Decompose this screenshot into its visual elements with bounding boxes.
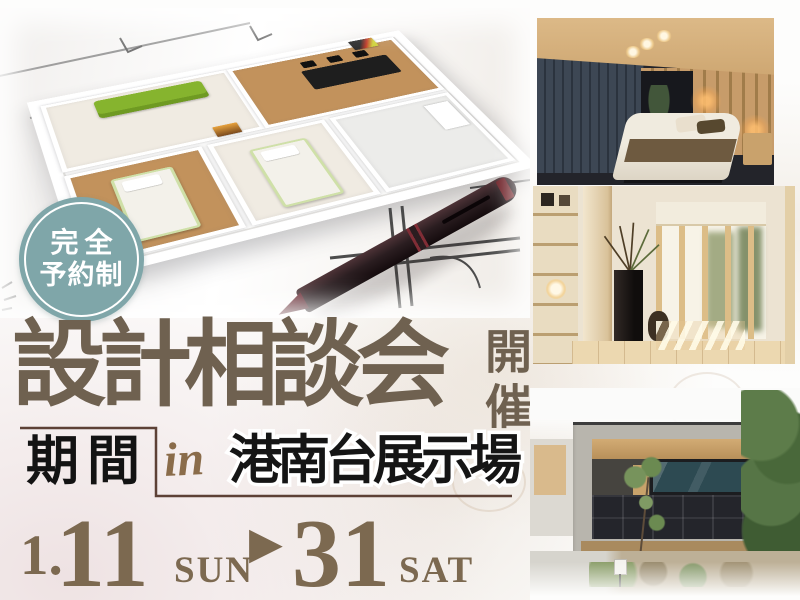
blanket: [624, 139, 736, 162]
wood-soffit: [592, 439, 764, 459]
arrow-right-icon: ▶: [249, 522, 283, 566]
bed: [620, 113, 736, 180]
dining-table: [301, 54, 402, 89]
window: [656, 202, 766, 339]
date-end-day: 31: [292, 505, 390, 600]
annex-wood-panel: [534, 445, 566, 496]
venue-name-text: 港南台展示場: [229, 432, 517, 490]
round-lamp: [546, 279, 566, 299]
badge-line2: 予約制: [40, 260, 124, 291]
wood-frame-edge: [785, 186, 795, 364]
facade-opening: [592, 439, 764, 540]
roller-shade: [656, 202, 766, 226]
downlight: [639, 38, 655, 50]
exterior-photo: [530, 388, 800, 600]
bottom-fade: [530, 562, 800, 600]
small-tree: [619, 452, 673, 554]
sunlight-stripes: [656, 321, 745, 349]
event-title: 設計相談会: [12, 316, 442, 418]
pillow: [260, 145, 301, 162]
shelf-object: [541, 193, 554, 205]
black-planter: [614, 270, 643, 345]
shelf-object: [559, 195, 569, 206]
wall-art: [212, 122, 242, 137]
badge-line1: 完全: [50, 228, 118, 260]
wood-pillar: [583, 186, 612, 364]
chair: [300, 60, 318, 68]
date-start-weekday: SUN: [174, 552, 254, 589]
sofa-green: [93, 80, 210, 118]
date-end-weekday: SAT: [399, 552, 474, 589]
reservation-badge: 完全 予約制: [19, 197, 144, 322]
wood-shelves: [533, 186, 578, 364]
window-grid: [592, 495, 764, 539]
chair: [326, 55, 344, 63]
tree: [741, 390, 800, 555]
bed: [249, 138, 345, 208]
period-label: 期間: [26, 436, 148, 489]
pillow: [121, 174, 163, 192]
spiky-plant: [596, 218, 664, 275]
venue-preposition: in: [163, 435, 205, 485]
event-title-suffix: 開催: [479, 327, 526, 437]
closet: [424, 101, 470, 130]
warm-lamp-glow: [689, 86, 723, 116]
nightstand: [743, 133, 771, 165]
annex-building: [530, 439, 576, 537]
interior-photo: [533, 186, 795, 364]
badge-text: 完全 予約制: [19, 197, 144, 322]
chair: [352, 50, 370, 58]
pen-grip-rings: [406, 223, 429, 252]
date-start-day: 11: [56, 505, 149, 600]
bedroom-photo: [537, 18, 774, 185]
pen-cap-band: [495, 177, 514, 201]
flyer-canvas: 完全 予約制 設計相談会 開催 期間 in 港南台展示場 港南台展示場 1. 1…: [0, 0, 800, 600]
downlight: [656, 30, 672, 42]
